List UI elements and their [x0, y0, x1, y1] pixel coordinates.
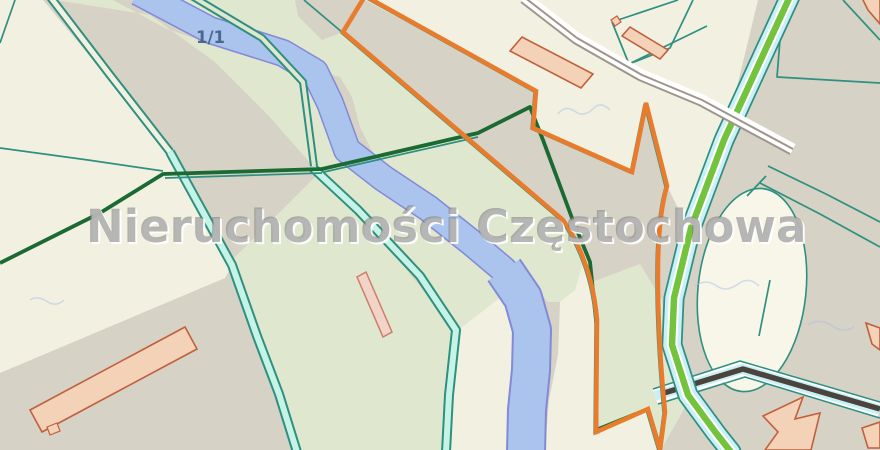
- map-viewport[interactable]: 1/1 Nieruchomości Częstochowa: [0, 0, 880, 450]
- parcel-number-label: 1/1: [196, 28, 225, 47]
- cadastral-map-canvas[interactable]: 1/1: [0, 0, 880, 450]
